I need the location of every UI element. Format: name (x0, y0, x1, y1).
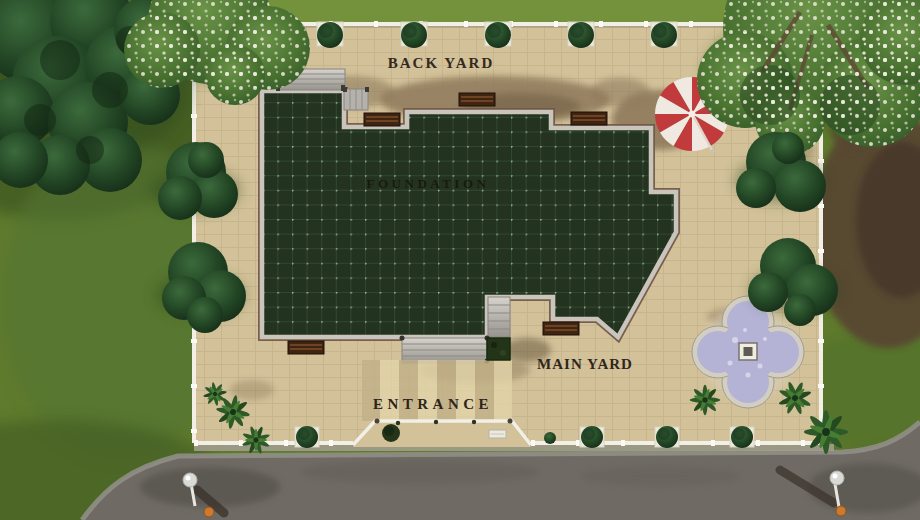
hedge-bush[interactable] (317, 22, 343, 48)
back-side-stairs[interactable] (343, 87, 369, 110)
bench[interactable] (543, 322, 579, 335)
hedge-bush[interactable] (544, 432, 556, 444)
foundation-label: FOUNDATION (367, 176, 490, 192)
bench[interactable] (288, 341, 324, 354)
square-shrub[interactable] (487, 338, 510, 360)
lamp-globe (830, 471, 844, 485)
hedge-bush[interactable] (568, 22, 594, 48)
hedge-bush[interactable] (401, 22, 427, 48)
bench[interactable] (571, 112, 607, 125)
hedge-bush[interactable] (295, 426, 319, 448)
lamp-base (836, 506, 846, 516)
entrance-planter[interactable] (382, 424, 400, 442)
hedge-bush[interactable] (485, 22, 511, 48)
lamp-base (204, 507, 214, 517)
fountain-center-ornament (739, 343, 757, 360)
bench[interactable] (459, 93, 495, 106)
entrance-stairs[interactable] (400, 336, 490, 364)
entrance-bench[interactable] (489, 430, 506, 438)
bench[interactable] (364, 113, 400, 126)
yard-channel-stairs[interactable] (488, 297, 510, 337)
scene-canvas (0, 0, 920, 520)
main-yard-label: MAIN YARD (537, 356, 633, 373)
lot-aerial-view: BACK YARD FOUNDATION MAIN YARD ENTRANCE (0, 0, 920, 520)
foundation-area (262, 91, 676, 337)
hedge-bush[interactable] (730, 426, 754, 448)
hedge-bush[interactable] (655, 426, 679, 448)
lamp-globe (183, 473, 197, 487)
hedge-bush[interactable] (651, 22, 677, 48)
back-yard-label: BACK YARD (388, 55, 494, 72)
hedge-bush[interactable] (580, 426, 604, 448)
entrance-label: ENTRANCE (373, 396, 493, 413)
